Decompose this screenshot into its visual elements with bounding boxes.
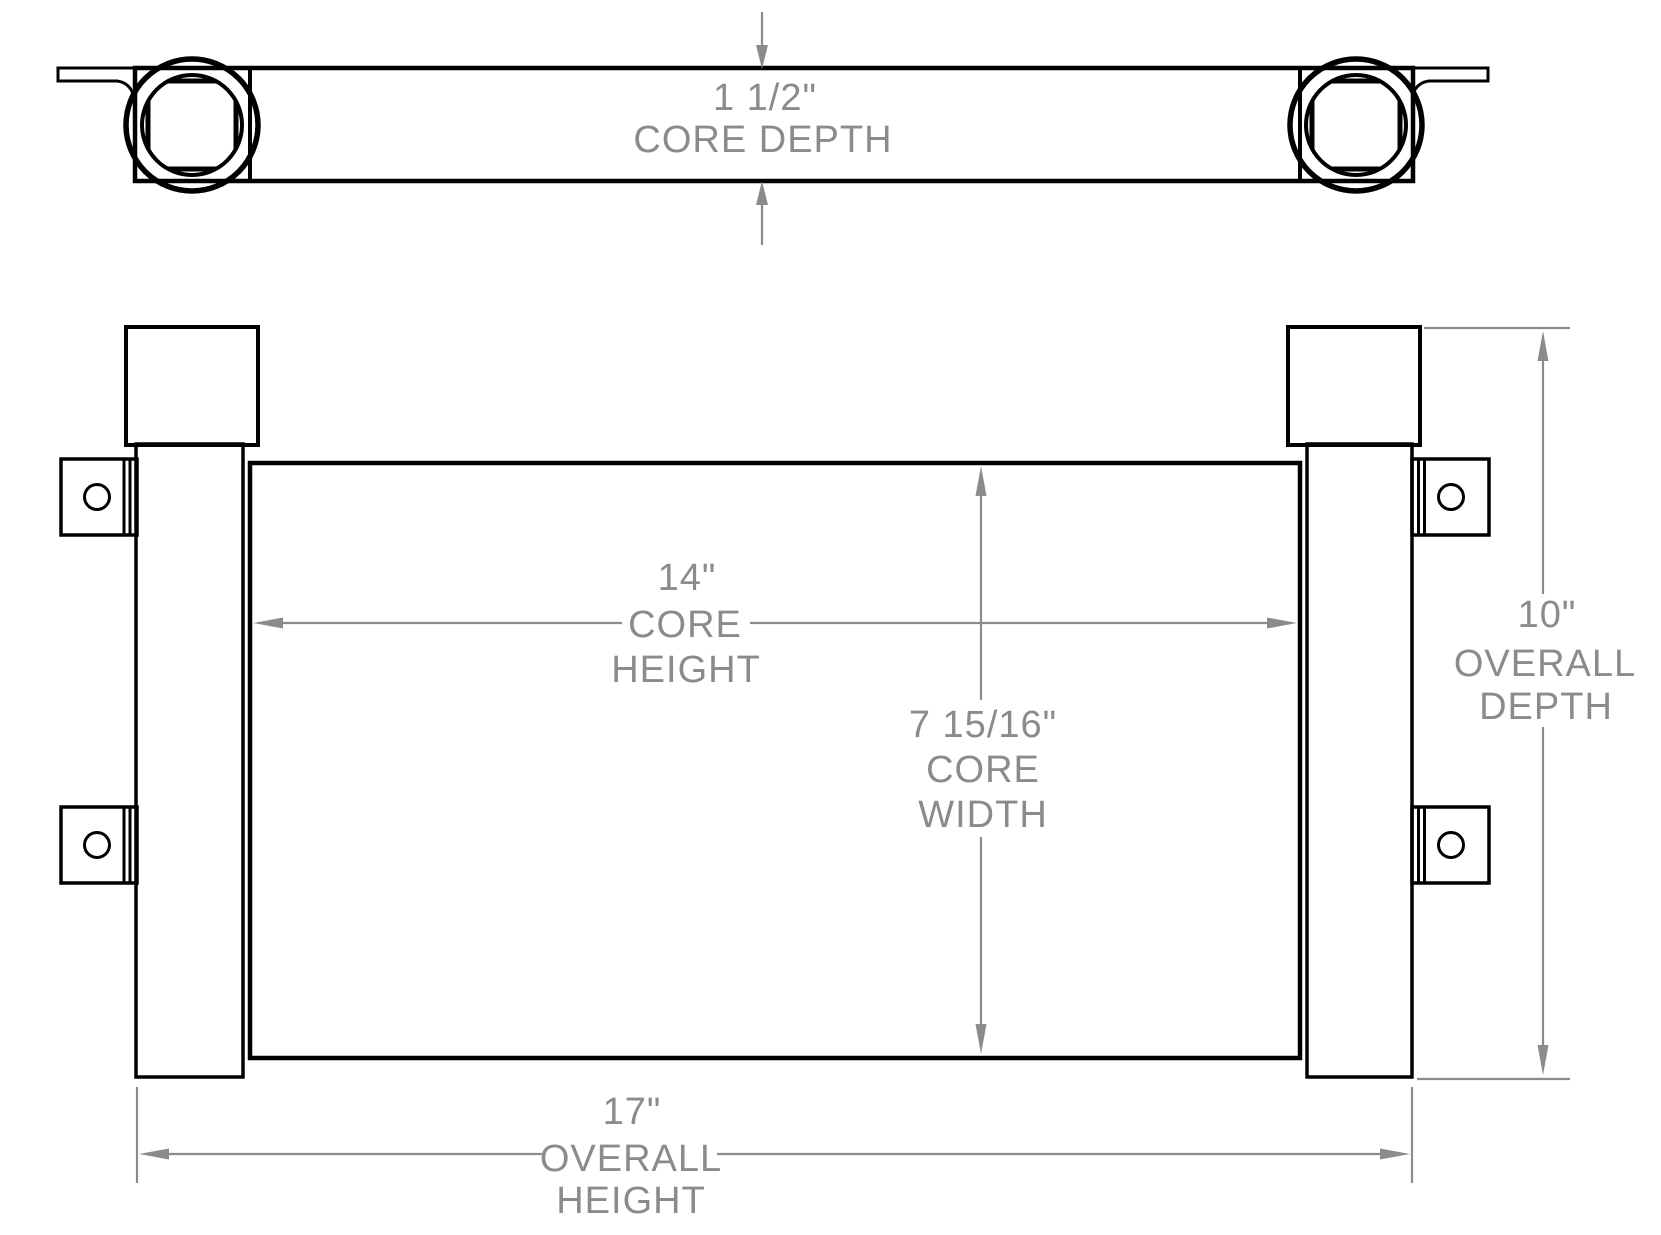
- core-height-dimension: 14" CORE HEIGHT: [253, 557, 1297, 691]
- arrow-up-icon: [756, 181, 768, 205]
- arrow-left-icon: [253, 618, 283, 629]
- overall-depth-value: 10": [1518, 594, 1577, 636]
- core-width-label-line1: CORE: [926, 749, 1040, 791]
- core-height-label-line2: HEIGHT: [611, 649, 761, 691]
- core-outline: [250, 463, 1300, 1058]
- arrow-up-icon: [1538, 331, 1549, 361]
- overall-depth-dimension: 10" OVERALL DEPTH: [1417, 328, 1636, 1079]
- overall-depth-label-line2: DEPTH: [1479, 686, 1613, 728]
- overall-height-label-line2: HEIGHT: [556, 1180, 706, 1222]
- core-depth-value: 1 1/2": [713, 77, 817, 119]
- core-width-value: 7 15/16": [909, 704, 1057, 746]
- arrow-down-icon: [1538, 1045, 1549, 1075]
- arrow-down-icon: [756, 45, 768, 69]
- core-height-value: 14": [658, 557, 717, 599]
- technical-drawing: 1 1/2" CORE DEPTH 14" CORE HEIGHT 7 15/1…: [0, 0, 1661, 1235]
- arrow-up-icon: [976, 466, 987, 496]
- mounting-bracket-lower-right: [1412, 807, 1489, 883]
- mounting-bracket-lower-left: [61, 807, 137, 883]
- bracket-plate: [61, 807, 137, 883]
- bracket-bolt-hole: [85, 485, 110, 510]
- core-depth-label: CORE DEPTH: [633, 119, 892, 161]
- right-port-square: [1312, 81, 1400, 169]
- left-port-fitting: [126, 59, 258, 191]
- arrow-right-icon: [1267, 618, 1297, 629]
- bracket-bolt-hole: [1439, 485, 1464, 510]
- right-port-fitting: [1290, 59, 1422, 191]
- arrow-down-icon: [976, 1024, 987, 1054]
- top-view-right-mount-tab: [1413, 68, 1488, 94]
- core-depth-dimension: 1 1/2" CORE DEPTH: [633, 12, 892, 245]
- mounting-bracket-upper-left: [61, 459, 137, 535]
- right-port-inner-ring: [1306, 75, 1406, 175]
- overall-height-dimension: 17" OVERALL HEIGHT: [137, 1087, 1412, 1222]
- right-tank: [1307, 444, 1412, 1077]
- overall-depth-label-line1: OVERALL: [1454, 643, 1636, 685]
- top-view-left-mount-tab: [58, 68, 135, 94]
- front-view: [61, 327, 1489, 1077]
- right-tank-cap: [1288, 327, 1420, 445]
- arrow-left-icon: [139, 1149, 169, 1160]
- bracket-bolt-hole: [1439, 833, 1464, 858]
- overall-height-label-line1: OVERALL: [540, 1138, 722, 1180]
- left-port-inner-ring: [142, 75, 242, 175]
- left-tank-cap: [126, 327, 258, 445]
- arrow-right-icon: [1380, 1149, 1410, 1160]
- core-height-label-line1: CORE: [628, 604, 742, 646]
- left-port-square: [148, 81, 236, 169]
- left-tank: [136, 444, 243, 1077]
- overall-height-value: 17": [603, 1091, 662, 1133]
- mounting-bracket-upper-right: [1412, 459, 1489, 535]
- drawing-page: 1 1/2" CORE DEPTH 14" CORE HEIGHT 7 15/1…: [0, 0, 1661, 1235]
- core-width-dimension: 7 15/16" CORE WIDTH: [909, 466, 1057, 1054]
- core-width-label-line2: WIDTH: [918, 794, 1048, 836]
- bracket-bolt-hole: [85, 833, 110, 858]
- bracket-plate: [61, 459, 137, 535]
